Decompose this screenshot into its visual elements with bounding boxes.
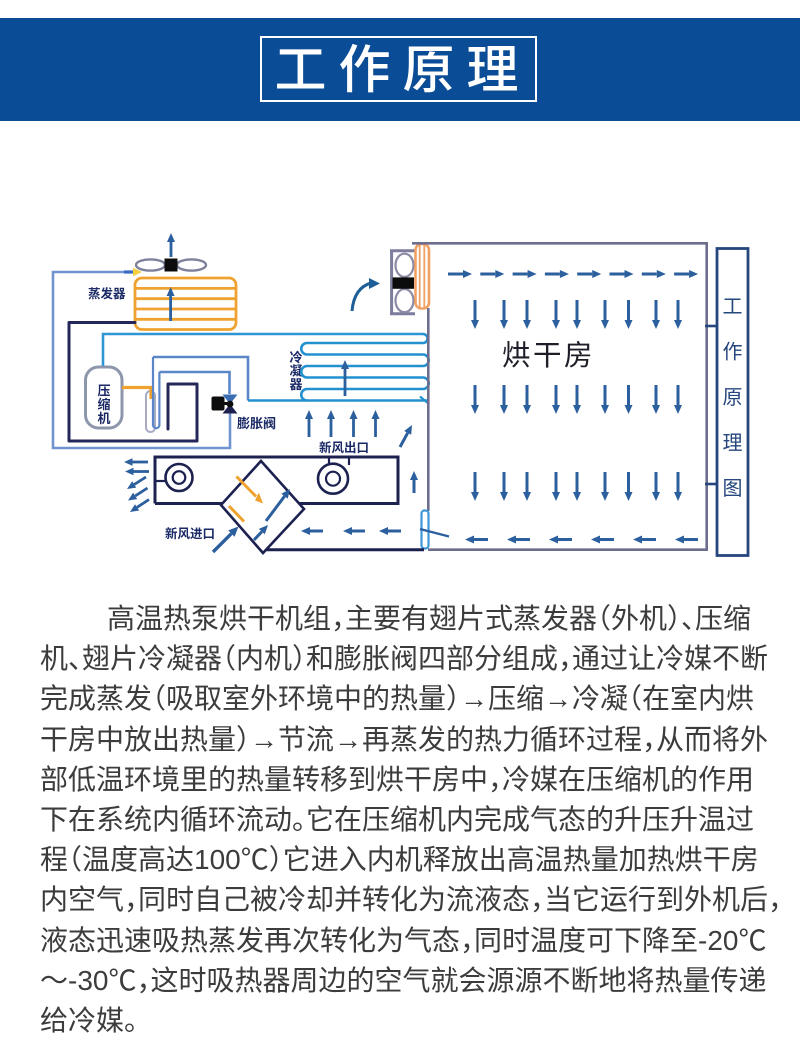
svg-text:理: 理 bbox=[723, 433, 743, 455]
svg-text:图: 图 bbox=[723, 478, 743, 500]
svg-text:作: 作 bbox=[723, 341, 743, 364]
svg-text:工: 工 bbox=[723, 296, 743, 318]
svg-text:缩: 缩 bbox=[98, 397, 111, 412]
svg-text:膨胀阀: 膨胀阀 bbox=[237, 416, 276, 431]
svg-text:新风进口: 新风进口 bbox=[165, 526, 215, 541]
svg-text:烘干房: 烘干房 bbox=[502, 340, 595, 372]
svg-text:原: 原 bbox=[723, 387, 743, 409]
svg-text:机: 机 bbox=[98, 411, 111, 426]
svg-text:新风出口: 新风出口 bbox=[319, 440, 369, 455]
svg-text:压: 压 bbox=[98, 383, 111, 398]
svg-text:器: 器 bbox=[290, 377, 303, 392]
svg-text:蒸发器: 蒸发器 bbox=[88, 286, 126, 301]
